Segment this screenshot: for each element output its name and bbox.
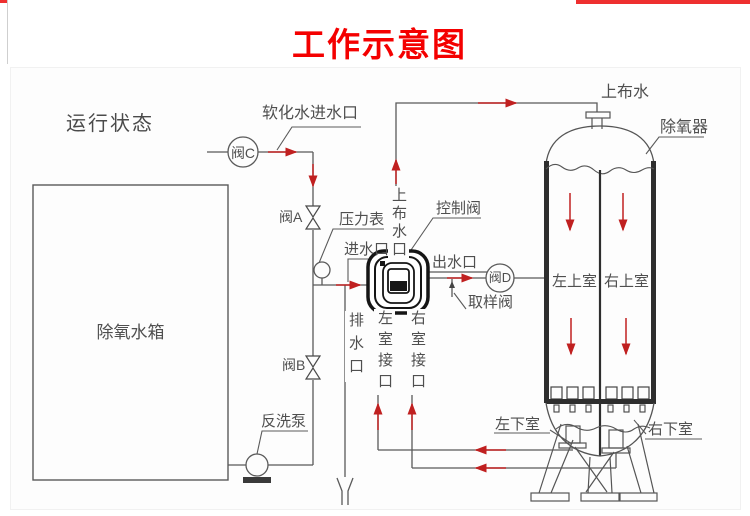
- valve-a-label: 阀A: [279, 209, 302, 225]
- sampling-valve-label: 取样阀: [468, 294, 513, 311]
- upper-left-chamber-label: 左上室: [551, 273, 598, 290]
- valve-b-symbol: [306, 356, 320, 379]
- page-title: 工作示意图: [292, 18, 467, 66]
- upper-right-chamber-label: 右上室: [603, 273, 650, 290]
- valve-b-label: 阀B: [282, 357, 305, 373]
- softened-water-inlet-label: 软化水进水口: [262, 105, 358, 123]
- status-label: 运行状态: [66, 113, 154, 136]
- leader-lines: [257, 127, 704, 454]
- valve-c-label: 阀C: [228, 145, 258, 161]
- backwash-pump-symbol: [243, 454, 271, 483]
- upper-distribution-pipe-label: 上布水口: [388, 186, 409, 260]
- water-inlet-label: 进水口: [344, 241, 389, 258]
- vessel-legs: [531, 424, 657, 501]
- valve-a-symbol: [306, 206, 320, 229]
- lower-right-chamber-label: 右下室: [648, 421, 693, 438]
- left-chamber-port-label: 左室接口: [374, 309, 395, 395]
- sampling-valve-symbol: [449, 281, 455, 288]
- backwash-pump-label: 反洗泵: [261, 413, 306, 430]
- drain-outlet-label: 排水口: [345, 311, 366, 382]
- storage-tank-label: 除氧水箱: [33, 323, 228, 343]
- lower-left-chamber-label: 左下室: [495, 416, 540, 433]
- water-outlet-label: 出水口: [432, 254, 477, 271]
- deaerator-vessel: [531, 112, 657, 501]
- right-chamber-port-label: 右室接口: [407, 309, 428, 395]
- upper-distribution-label: 上布水: [601, 84, 649, 102]
- valve-d-label: 阀D: [485, 271, 515, 286]
- control-valve-device: [368, 251, 428, 313]
- pressure-gauge-label: 压力表: [339, 211, 384, 228]
- pressure-gauge-symbol: [314, 262, 330, 278]
- schematic-page: 工作示意图 运行状态 软化水进水口 阀C 阀A 压力表 进水口 控制阀 出水口 …: [0, 0, 750, 516]
- deaerator-label: 除氧器: [660, 119, 708, 137]
- drain-funnel: [337, 478, 353, 505]
- control-valve-label: 控制阀: [436, 200, 481, 217]
